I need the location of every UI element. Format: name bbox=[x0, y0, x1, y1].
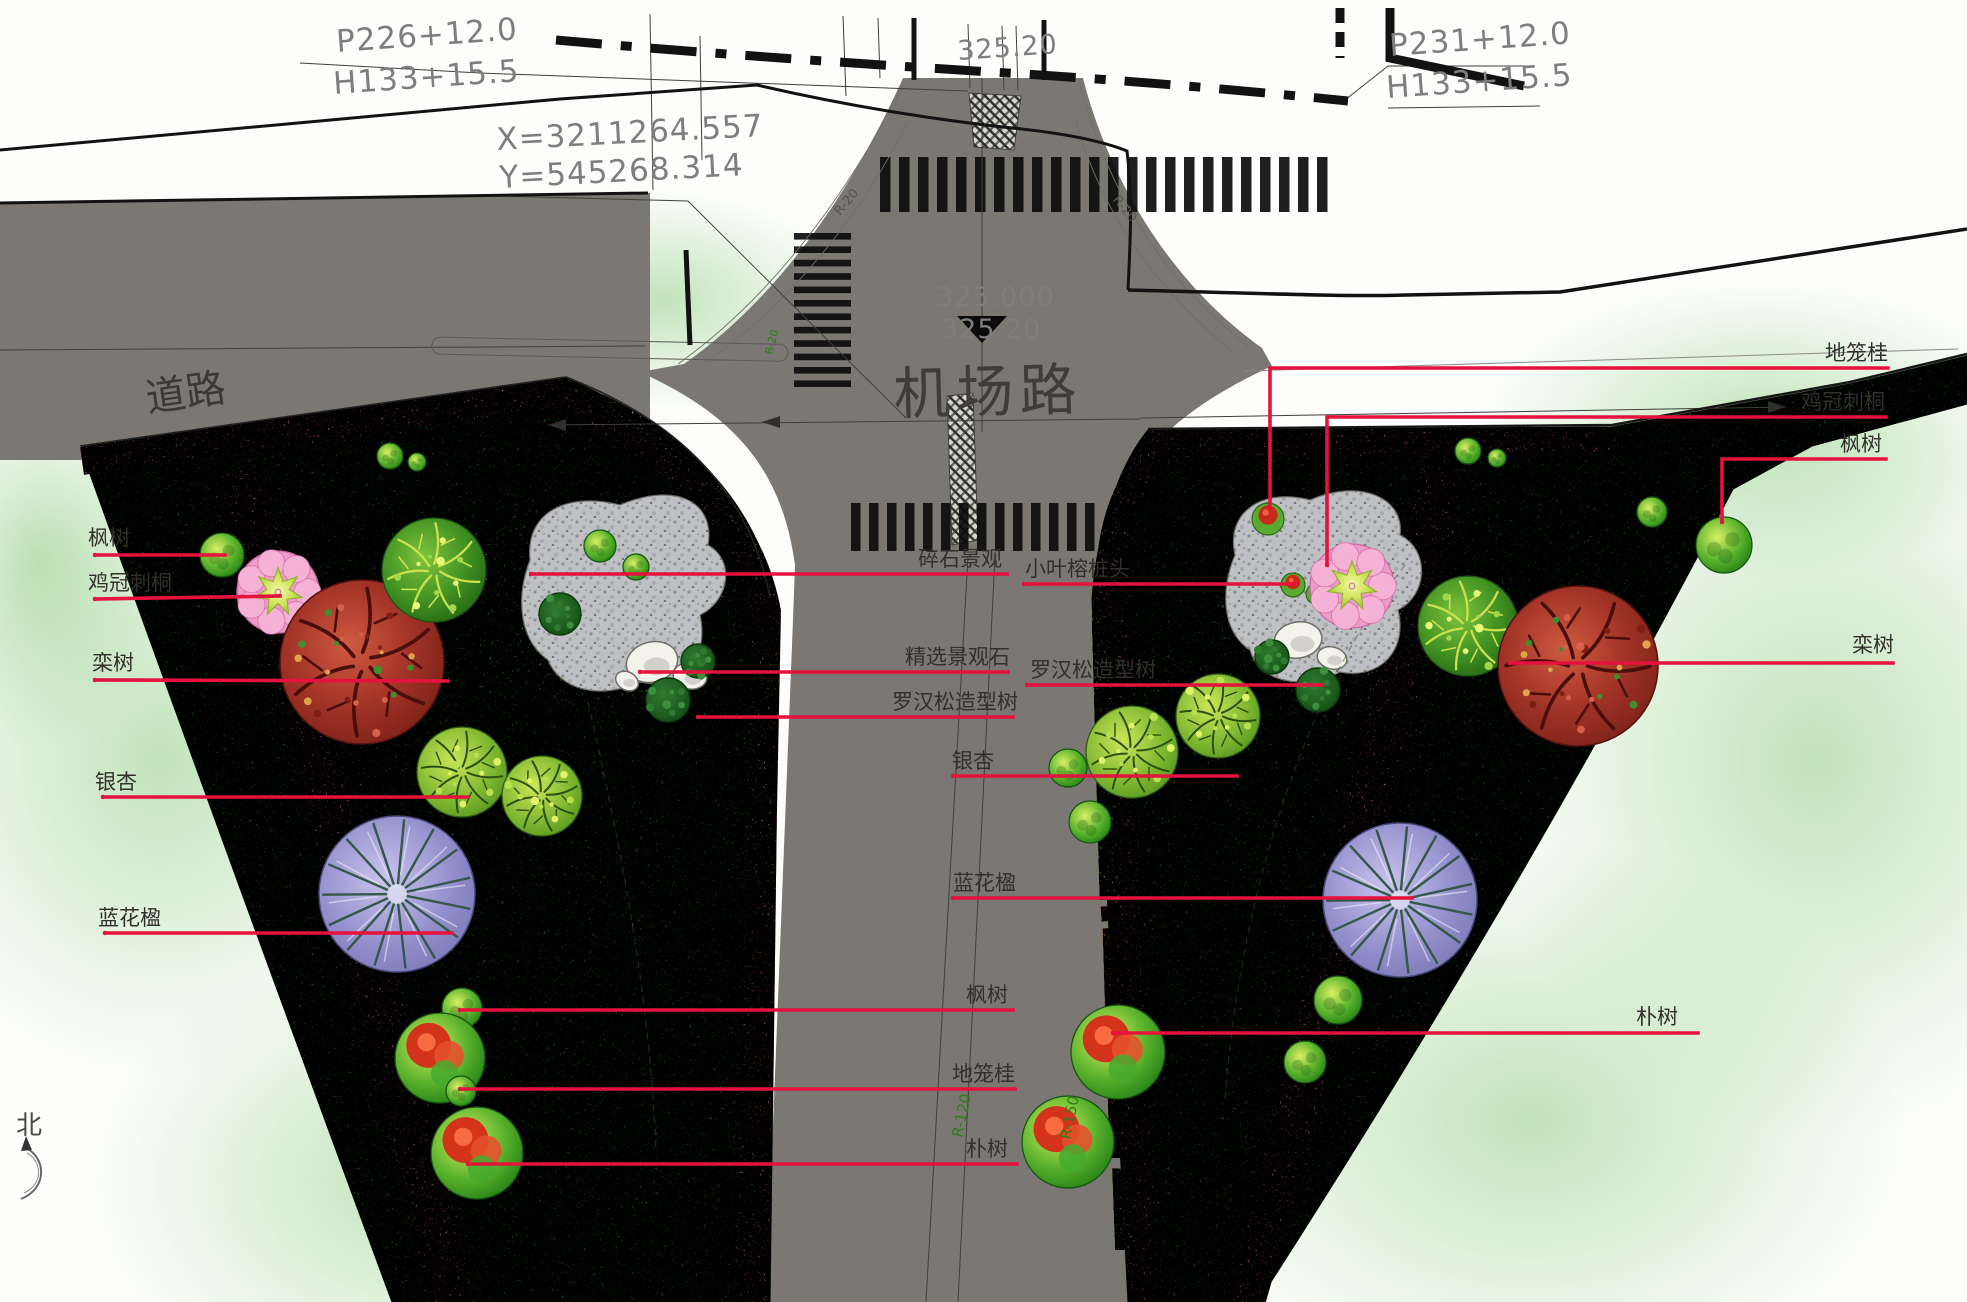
tree-shrub bbox=[1637, 497, 1667, 527]
plant-label-jacaranda-center: 蓝花楹 bbox=[953, 871, 1016, 895]
median-band-green2-east bbox=[1120, 1168, 1123, 1250]
tree-shrub bbox=[623, 554, 649, 580]
plant-label-gravel: 碎石景观 bbox=[918, 547, 1002, 571]
plant-label-maple-west: 枫树 bbox=[88, 526, 130, 550]
plant-label-jacaranda-west: 蓝花楹 bbox=[98, 906, 161, 930]
plant-label-erythrina-east: 鸡冠刺桐 bbox=[1801, 390, 1885, 414]
plant-label-ginkgo-center: 银杏 bbox=[952, 749, 994, 773]
plant-label-hackberry-center: 朴树 bbox=[966, 1137, 1008, 1161]
plant-label-dilonggui-east: 地笼桂 bbox=[1825, 341, 1888, 365]
tree-shrub bbox=[1284, 1041, 1326, 1083]
tree-shrub bbox=[1455, 438, 1481, 464]
plan-drawing: P226+12.0 H133+15.5 P231+12.0 H133+15.5 … bbox=[0, 0, 1967, 1302]
main-road-name: 机场路 bbox=[893, 359, 1084, 427]
plant-label-erythrina-west: 鸡冠刺桐 bbox=[88, 571, 172, 595]
tree-podocarpus bbox=[1296, 667, 1340, 712]
tree-jacaranda bbox=[1323, 823, 1477, 977]
tree-flower bbox=[1310, 543, 1396, 630]
tree-ginkgo bbox=[502, 756, 582, 836]
tree-hackberry bbox=[431, 1107, 523, 1199]
median-band-orange-west bbox=[750, 915, 759, 1143]
plant-label-podocarpus-east: 罗汉松造型树 bbox=[1030, 658, 1156, 682]
tree-maple bbox=[1696, 517, 1752, 573]
leader-line bbox=[95, 680, 448, 681]
plant-label-ficus-stump: 小叶榕桩头 bbox=[1025, 557, 1130, 581]
elevation-sub-label: 325.20 bbox=[941, 314, 1041, 345]
plant-label-dilonggui-center: 地笼桂 bbox=[952, 1062, 1015, 1086]
tree-jacaranda bbox=[319, 816, 475, 972]
tree-shrub bbox=[584, 530, 616, 562]
pink-verge-east-top bbox=[1150, 441, 1612, 444]
landscape-plan-canvas: P226+12.0 H133+15.5 P231+12.0 H133+15.5 … bbox=[0, 0, 1967, 1302]
plant-label-hackberry-east: 朴树 bbox=[1636, 1005, 1678, 1029]
tree-podocarpus bbox=[539, 593, 581, 635]
tree-shrub bbox=[1488, 449, 1506, 467]
plant-label-maple-center: 枫树 bbox=[966, 983, 1008, 1007]
plant-label-koelreuteria-west: 栾树 bbox=[92, 651, 134, 675]
tree-koelreuteria bbox=[1498, 586, 1658, 746]
tree-podocarpus bbox=[646, 678, 690, 722]
elevation-label: 325.000 bbox=[936, 282, 1055, 313]
tree-ybranch bbox=[382, 518, 486, 622]
plant-label-koelreuteria-east: 栾树 bbox=[1852, 633, 1894, 657]
tree-hackberry bbox=[1071, 1005, 1165, 1099]
tree-shrub bbox=[446, 1076, 476, 1106]
plant-label-ginkgo-west: 银杏 bbox=[95, 770, 137, 794]
plant-label-maple-east: 枫树 bbox=[1840, 432, 1882, 456]
tree-shrub bbox=[1314, 976, 1362, 1024]
median-band-green-west bbox=[760, 622, 770, 903]
north-label: 北 bbox=[16, 1111, 42, 1140]
tree-shrub bbox=[1049, 749, 1087, 787]
tree-shrub bbox=[1069, 801, 1111, 843]
tree-shrub bbox=[377, 443, 403, 469]
plant-label-stone: 精选景观石 bbox=[905, 645, 1010, 669]
tree-ginkgo bbox=[1086, 706, 1178, 798]
tree-shrub bbox=[408, 453, 426, 471]
tree-ginkgo bbox=[417, 727, 507, 817]
plant-label-podocarpus-west: 罗汉松造型树 bbox=[892, 690, 1018, 714]
median-band-magenta-east bbox=[1110, 906, 1111, 921]
